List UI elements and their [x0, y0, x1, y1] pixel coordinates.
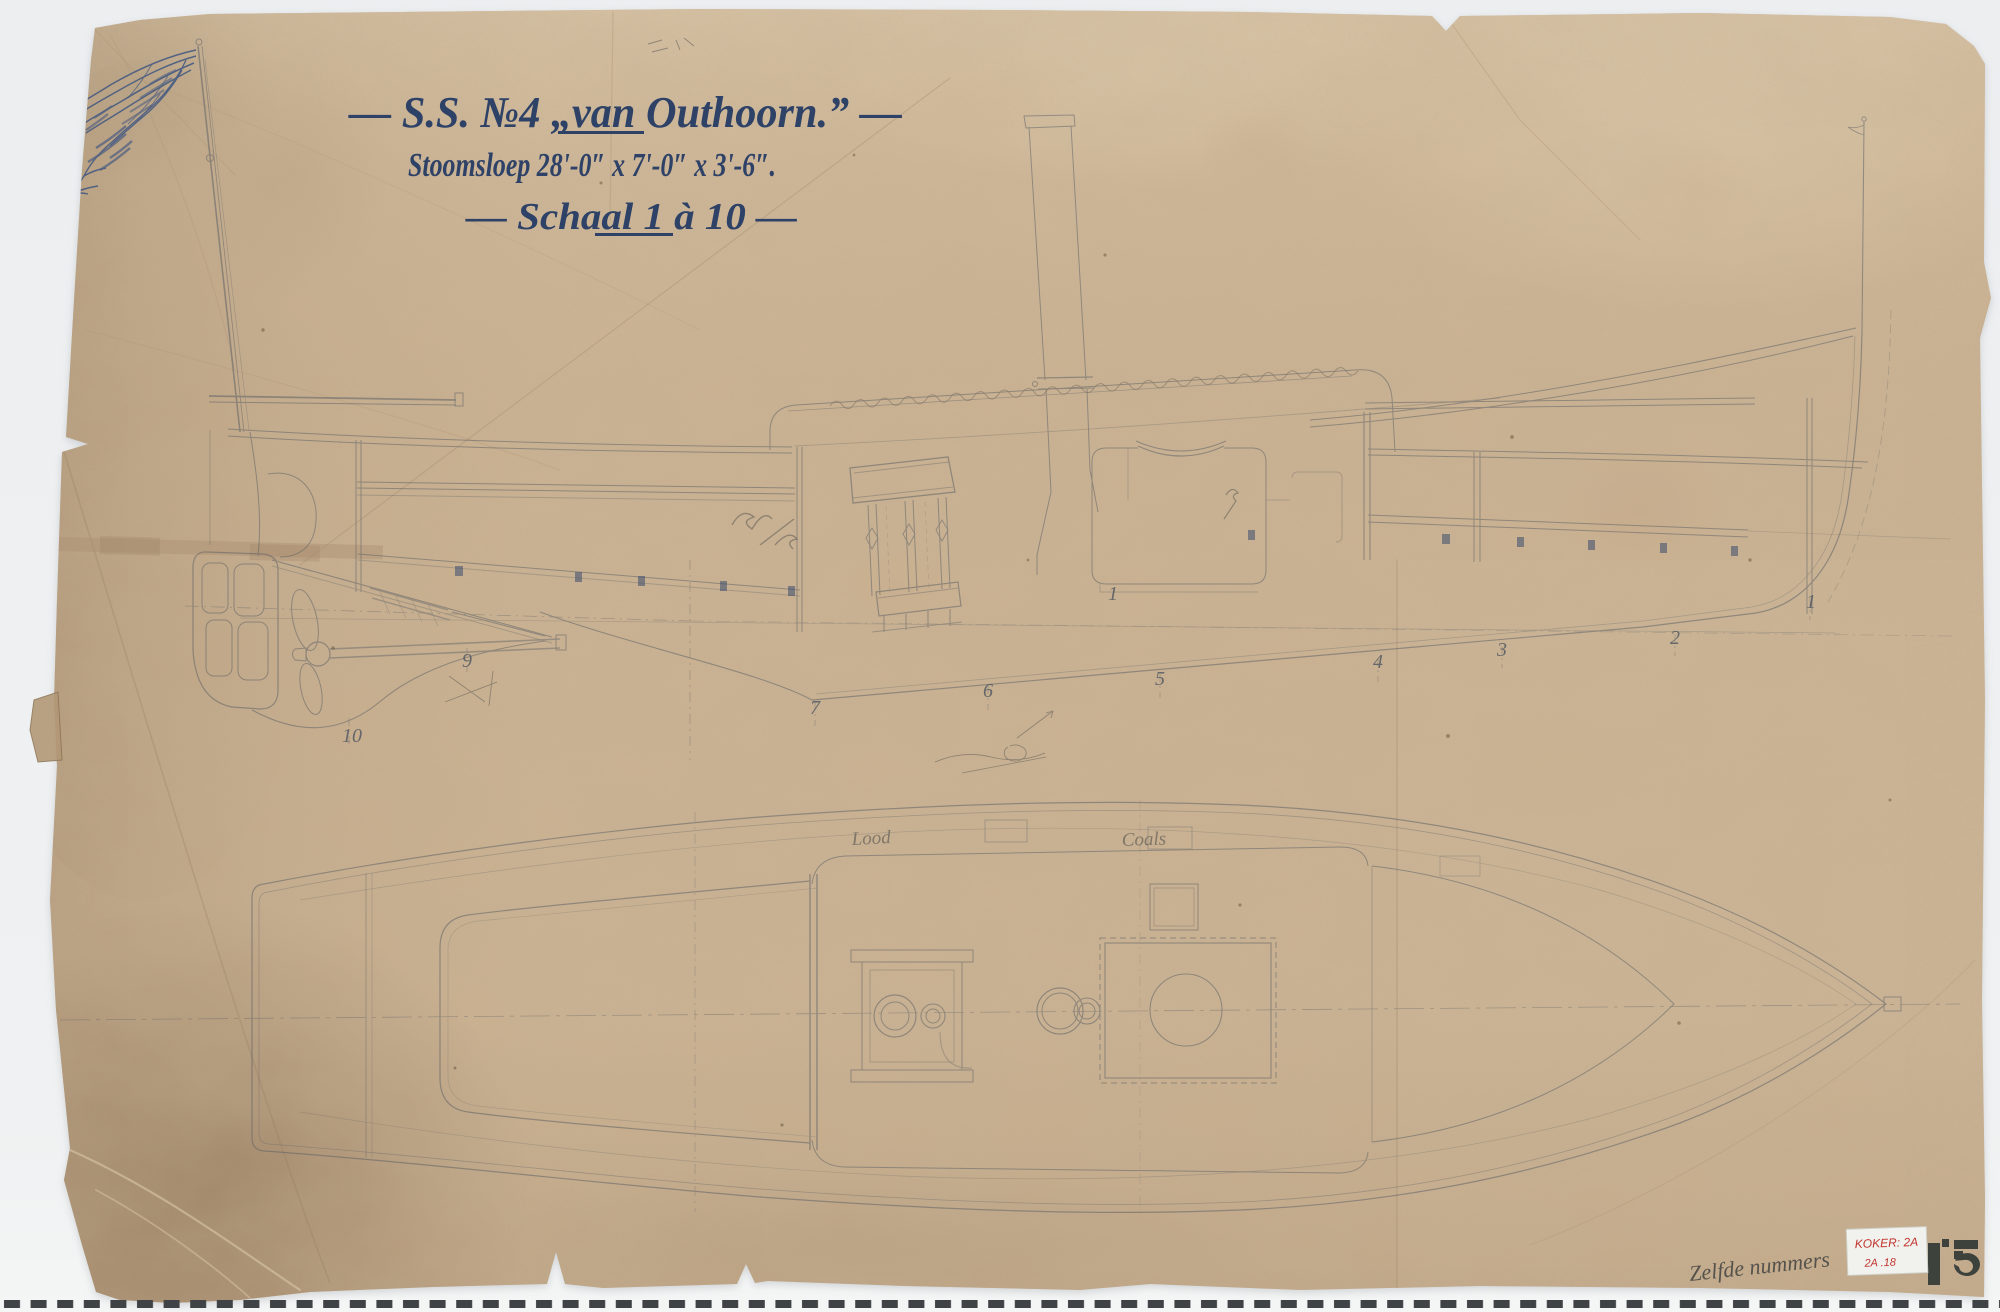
svg-text:7: 7	[810, 697, 821, 719]
svg-text:KOKER: 2A: KOKER: 2A	[1855, 1235, 1919, 1251]
svg-text:6: 6	[983, 680, 993, 702]
svg-text:Stoomsloep 28'-0″ x 7'-0″ x 3': Stoomsloep 28'-0″ x 7'-0″ x 3'-6″.	[408, 147, 776, 184]
svg-text:— S.S. №4 „van Outhoorn.” —: — S.S. №4 „van Outhoorn.” —	[348, 88, 902, 137]
svg-text:Lood: Lood	[850, 827, 892, 850]
svg-text:Coals: Coals	[1121, 828, 1166, 851]
svg-text:— Schaal 1 à 10 —: — Schaal 1 à 10 —	[465, 196, 797, 238]
svg-text:2A .18: 2A .18	[1863, 1257, 1897, 1270]
svg-text:9: 9	[462, 650, 472, 672]
svg-text:5: 5	[1155, 668, 1165, 690]
svg-text:2: 2	[1670, 627, 1680, 649]
svg-text:3: 3	[1496, 639, 1507, 661]
svg-text:1: 1	[1806, 591, 1816, 613]
svg-text:1: 1	[1108, 583, 1118, 605]
svg-text:4: 4	[1373, 651, 1383, 673]
svg-text:10: 10	[342, 725, 362, 747]
